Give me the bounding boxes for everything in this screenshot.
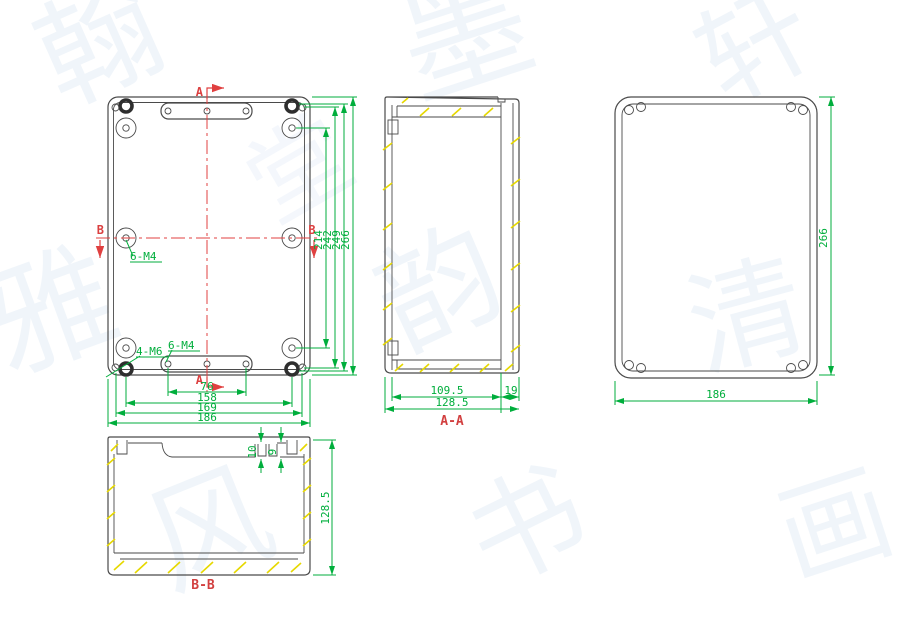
section-bb-view: 10 9 128.5 B-B [107, 427, 336, 593]
front-view: A A B B 214 242 249 266 [96, 85, 357, 427]
section-bb-title: B-B [191, 578, 215, 593]
centerlines [96, 90, 320, 392]
enclosure-inner-outline [114, 103, 305, 370]
section-a-label-top: A [196, 85, 204, 99]
aa-hatching [383, 98, 520, 372]
dim-186-back: 186 [706, 388, 726, 401]
dim-128-5-aa: 128.5 [435, 396, 468, 409]
dim-266: 266 [339, 230, 352, 250]
callout-4m6: 4-M6 [136, 345, 163, 358]
section-aa-title: A-A [440, 414, 464, 429]
front-view-vertical-dims: 214 242 249 266 [296, 97, 357, 375]
dim-19: 19 [504, 384, 517, 397]
bb-body-outline [108, 437, 310, 575]
dim-10: 10 [246, 445, 259, 458]
aa-body-outline [385, 97, 519, 373]
drawing-canvas: A A B B 214 242 249 266 [0, 0, 900, 636]
back-corner-holes [625, 103, 808, 373]
dim-9: 9 [266, 449, 279, 456]
back-inner-outline [622, 104, 810, 371]
enclosure-outer-outline [108, 97, 310, 375]
back-outer-outline [615, 97, 817, 378]
dim-186: 186 [197, 411, 217, 424]
section-b-label-left: B [97, 223, 104, 237]
section-aa-view: 109.5 19 128.5 A-A [383, 97, 520, 429]
dim-128-5-bb: 128.5 [319, 491, 332, 524]
section-cut-marks: A A B B [97, 85, 316, 387]
callout-6m4-mid: 6-M4 [130, 250, 157, 263]
aa-dims: 109.5 19 128.5 [385, 373, 519, 413]
back-dims: 266 186 [615, 97, 835, 405]
back-view: 266 186 [615, 97, 835, 405]
callout-6m4-tab: 6-M4 [168, 339, 195, 352]
dim-266-back: 266 [817, 228, 830, 248]
front-view-horizontal-dims: 76 158 169 186 [108, 368, 310, 427]
bb-hatching [107, 444, 311, 573]
drawing-sheet: 翰 墨 轩 雅 韵 清 风 书 画 堂 [0, 0, 900, 636]
